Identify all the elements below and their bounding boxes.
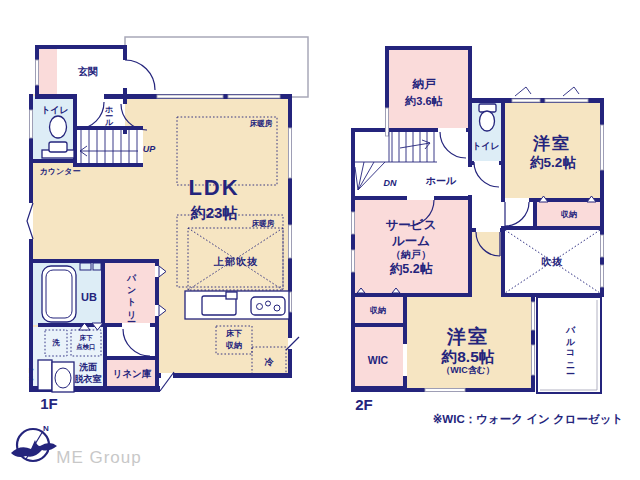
floor1-porch (125, 37, 308, 97)
floor1-title: 1F (40, 396, 58, 411)
room-label-void: 吹抜 (541, 257, 563, 267)
room-label-pantry: パントリー (127, 268, 136, 319)
room-area-bedroom85: 約8.5帖 (442, 349, 495, 365)
closet-label-a: 収納 (561, 211, 577, 219)
room-label-toilet-1f: トイレ (41, 106, 69, 115)
pipe-space-label: PS (28, 367, 35, 383)
shutter-mark-icon (515, 87, 531, 96)
bathtub-icon (42, 266, 76, 322)
stairs-up-label: UP (143, 145, 156, 154)
floor2-title: 2F (355, 397, 373, 412)
room-label-wic: WIC (368, 355, 388, 366)
underfloor-storage-label-2: 収納 (226, 342, 242, 350)
room-label-storeroom: 納戸 (413, 79, 436, 91)
room-label-toilet-2f: トイレ (472, 142, 500, 151)
room-label-hall-2f: ホール (426, 176, 456, 186)
compass-north-label: N (43, 425, 49, 433)
underfloor-storage-label-1: 床下 (226, 330, 242, 338)
room-label-service-3: （納戸） (391, 250, 431, 260)
room-label-washroom-1: 洗面 (79, 363, 97, 372)
room-label-service-2: ルーム (392, 235, 430, 248)
room-label-bedroom85: 洋室 (447, 327, 489, 346)
brand-name: ME Group (56, 449, 141, 466)
shutter-mark-icon (563, 87, 579, 96)
room-area-ldk: 約23帖 (191, 205, 238, 220)
floor2-fixtures (479, 104, 496, 131)
toilet-icon (480, 111, 495, 131)
room-label-void-above: 上部吹抜 (214, 257, 258, 267)
room-label-hall-1f: ホール (104, 101, 112, 125)
room-label-counter: カウンター (40, 168, 81, 176)
room-label-ldk: LDK (188, 177, 239, 199)
toilet-icon (50, 116, 67, 138)
room-label-balcony: バルコニー (566, 320, 575, 371)
room-label-bedroom52: 洋室 (533, 135, 571, 152)
kitchen-island (185, 291, 289, 319)
floor-heating-label-1: 床暖房 (250, 120, 273, 128)
room-area-service: 約5.2帖 (390, 263, 432, 276)
fridge-label: 冷 (265, 358, 274, 367)
washer-label: 洗 (52, 339, 60, 347)
floor-heating-label-2: 床暖房 (252, 220, 275, 228)
pipe-space-icon (38, 360, 52, 390)
wic-note: ※WIC：ウォーク イン クローゼット (433, 414, 624, 426)
room-label-ub: UB (81, 292, 97, 303)
floor-plan-page: 玄関 トイレ ホール UP カウンター LDK 約23帖 床暖房 床暖房 上部吹… (0, 0, 640, 480)
room-label-genkan: 玄関 (78, 67, 98, 77)
underfloor-hatch-label-2: 点検口 (76, 344, 96, 351)
stairs-down-label: DN (384, 179, 397, 188)
room-label-linen: リネン庫 (113, 369, 152, 379)
room-area-bedroom52: 約5.2帖 (530, 156, 576, 170)
room-label-washroom-2: 脱衣室 (75, 375, 102, 384)
underfloor-hatch-label-1: 床下 (80, 335, 93, 342)
room-area-storeroom: 約3.6帖 (405, 96, 442, 107)
room-note-bedroom85: （WIC含む） (441, 366, 495, 375)
closet-label-b: 収納 (370, 307, 386, 315)
me-group-logo (11, 429, 57, 461)
room-label-service-1: サービス (386, 219, 437, 232)
